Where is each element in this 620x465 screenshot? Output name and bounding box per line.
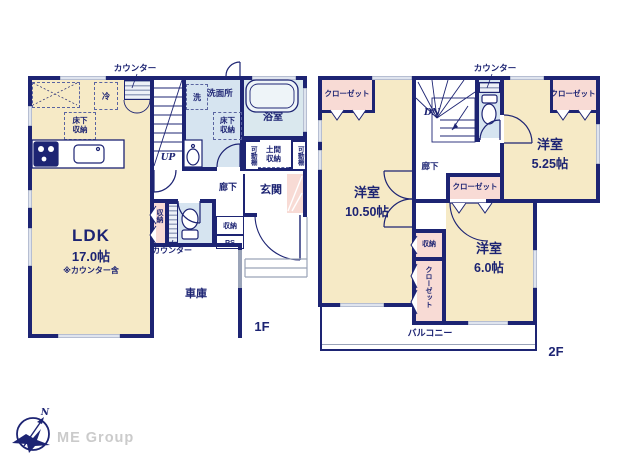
wall <box>442 229 446 325</box>
closet-a-label: クローゼット <box>322 90 372 98</box>
door-gap <box>450 199 486 203</box>
balcony-rail-inner <box>322 344 535 345</box>
wall <box>533 199 600 203</box>
stairs-dn-label: DN <box>419 108 445 118</box>
window <box>510 76 544 80</box>
floor-plan-page: 冷 床下収納 洗 床下収納 可動棚 土間収納 可動棚 収納 PS カウンター 洗… <box>0 0 620 465</box>
toilet2f-counter-hatch <box>479 82 500 93</box>
window <box>372 76 412 80</box>
bedroom-c-name: 洋室 <box>451 238 527 257</box>
hall-2f-label: 廊下 <box>414 162 446 172</box>
bedroom-b-size: 5.25帖 <box>512 153 588 172</box>
bedroom-a-size: 10.50帖 <box>329 201 405 220</box>
floor2-label: 2F <box>540 345 572 360</box>
wall <box>318 76 322 307</box>
bedroom-b-label-block: 洋室 5.25帖 <box>512 134 588 172</box>
balcony-label: バルコニー <box>398 328 462 338</box>
hall-storage-2f-label: 収納 <box>416 241 442 249</box>
balcony-rail <box>320 349 537 351</box>
bedroom-c-size: 6.0帖 <box>451 257 527 276</box>
closet-mid-label: クローゼット <box>450 183 500 191</box>
bedroom-a-label-block: 洋室 10.50帖 <box>329 182 405 220</box>
balcony-rail <box>535 325 537 351</box>
floor-plan-2f: クローゼット クローゼット クローゼット クローゼット 収納 カウンター DN … <box>0 0 620 465</box>
counter-label-2f: カウンター <box>472 64 518 74</box>
window <box>468 321 508 325</box>
window <box>340 303 384 307</box>
door-gap <box>480 138 500 142</box>
window <box>318 150 322 170</box>
bedroom-b-name: 洋室 <box>512 134 588 153</box>
window <box>533 250 537 288</box>
hall-closet-2f-label: クローゼット <box>425 266 432 308</box>
bedroom-a-name: 洋室 <box>329 182 405 201</box>
company-watermark: ME Group <box>57 430 134 446</box>
wall <box>318 76 600 80</box>
compass-north-label: N <box>38 408 52 418</box>
bedroom-c-label-block: 洋室 6.0帖 <box>451 238 527 276</box>
window <box>318 120 322 142</box>
door-gap <box>500 115 504 143</box>
closet-b-label: クローゼット <box>550 90 596 98</box>
window <box>596 124 600 164</box>
